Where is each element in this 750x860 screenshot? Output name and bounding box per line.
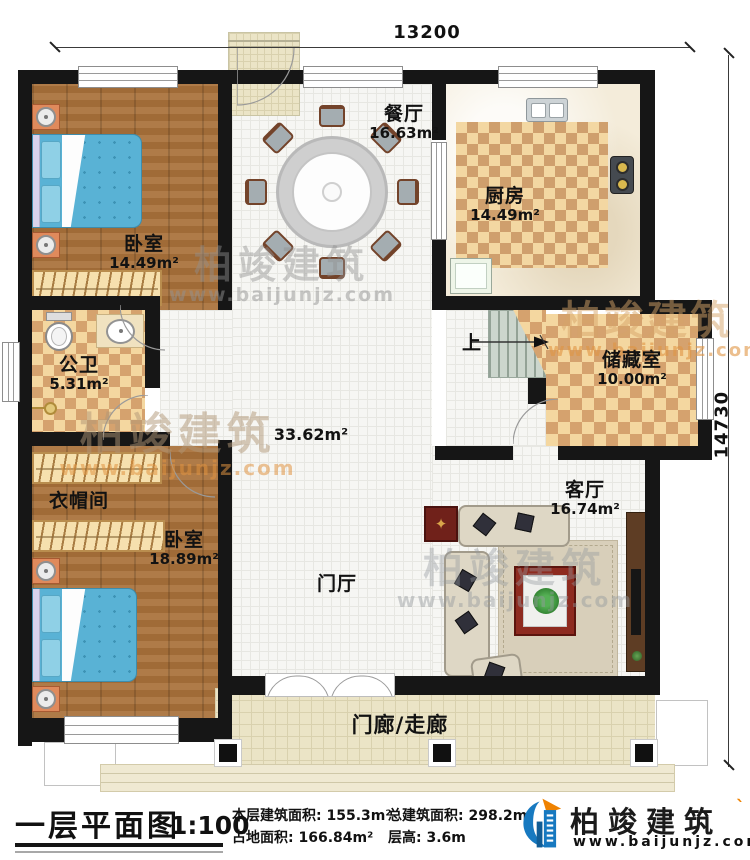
dimension-tick xyxy=(723,47,734,58)
title-bar: 一层平面图 1:100 本层建筑面积: 155.3m² 占地面积: 166.84… xyxy=(0,795,750,860)
window xyxy=(498,66,598,88)
chair-icon xyxy=(397,179,419,205)
door-arc-icon xyxy=(120,305,166,351)
window xyxy=(64,716,179,744)
logo-accent: ˋ xyxy=(736,797,745,818)
plan-title: 一层平面图 xyxy=(15,801,180,845)
porch-steps xyxy=(100,764,675,792)
stove-icon xyxy=(610,156,634,194)
pillow xyxy=(41,639,61,677)
dimension-label-right: 14730 xyxy=(712,399,733,459)
room-label-storage: 储藏室 10.00m² xyxy=(572,350,692,388)
wall-segment xyxy=(640,70,655,314)
door-arc-icon xyxy=(513,399,559,445)
dimension-label-top: 13200 xyxy=(382,22,472,43)
stat-label: 层高: xyxy=(388,830,422,846)
nightstand-icon xyxy=(32,104,60,130)
pillow xyxy=(41,141,61,179)
wall-segment xyxy=(435,446,513,460)
porch-column xyxy=(429,740,455,766)
drain-pipe xyxy=(32,407,46,409)
window xyxy=(78,66,178,88)
door-arc-icon xyxy=(103,395,149,441)
stats-column-2: 总建筑面积: 298.2m² 层高: 3.6m xyxy=(388,805,534,850)
dimension-line-top xyxy=(55,47,690,48)
porch-column xyxy=(215,740,241,766)
wall-segment xyxy=(395,676,645,695)
dimension-tick xyxy=(723,759,734,770)
bed-headboard xyxy=(33,135,40,227)
room-label-bedroom-top: 卧室 14.49m² xyxy=(94,234,194,272)
room-label-bedroom-bottom: 卧室 18.89m² xyxy=(134,530,234,568)
toilet-icon xyxy=(44,312,74,352)
pillow xyxy=(41,185,61,223)
stat-label: 占地面积: xyxy=(232,830,294,846)
wall-segment xyxy=(558,446,655,460)
pillow xyxy=(41,595,61,633)
title-underline-2 xyxy=(15,851,223,853)
stat-value: 166.84m² xyxy=(298,830,373,846)
room-label-dining: 餐厅 16.63m² xyxy=(354,104,454,142)
wall-segment xyxy=(432,296,655,310)
bed-icon xyxy=(32,134,142,228)
wall-segment xyxy=(18,70,32,746)
window xyxy=(303,66,403,88)
sliding-door xyxy=(431,142,447,240)
chair-icon xyxy=(319,257,345,279)
floor-plan: 上 ✦ xyxy=(0,0,750,860)
stairs-up-label: 上 xyxy=(462,328,481,355)
folding-door xyxy=(265,673,395,697)
side-table-icon: ✦ xyxy=(424,506,458,542)
chair-icon xyxy=(245,179,267,205)
nightstand-icon xyxy=(32,686,60,712)
bed-icon xyxy=(32,588,137,682)
door-arc-icon xyxy=(237,48,297,108)
logo-url: www.baijunjz.com xyxy=(573,834,750,850)
stat-label: 本层建筑面积: xyxy=(232,808,322,824)
window xyxy=(2,342,20,402)
room-label-bathroom: 公卫 5.31m² xyxy=(29,355,129,393)
door-arc-icon xyxy=(170,452,216,498)
stat-value: 3.6m xyxy=(426,830,465,846)
nightstand-icon xyxy=(32,232,60,258)
nightstand-icon xyxy=(32,558,60,584)
dining-table-icon xyxy=(276,136,388,248)
wall-segment xyxy=(232,676,265,695)
side-platform-right xyxy=(656,700,708,766)
fridge-icon xyxy=(450,258,492,294)
wall-segment xyxy=(218,70,232,310)
coffee-table-icon xyxy=(514,566,576,636)
stat-label: 总建筑面积: xyxy=(388,808,464,824)
room-label-cloakroom: 衣帽间 xyxy=(19,491,139,512)
bed-headboard xyxy=(33,589,40,681)
porch-column xyxy=(631,740,657,766)
stats-column-1: 本层建筑面积: 155.3m² 占地面积: 166.84m² xyxy=(232,805,392,850)
up-arrow-icon xyxy=(470,334,552,350)
cloakroom-rack-icon xyxy=(32,452,162,484)
title-underline xyxy=(15,843,223,847)
room-label-hall-area: 33.62m² xyxy=(261,426,361,444)
stat-value: 155.3m² xyxy=(326,808,391,824)
room-label-living: 客厅 16.74m² xyxy=(535,480,635,518)
wall-segment xyxy=(218,440,232,718)
kitchen-sink-icon xyxy=(526,98,568,122)
logo-icon xyxy=(518,797,564,849)
room-label-porch: 门廊/走廊 xyxy=(320,714,480,738)
wall-segment xyxy=(645,446,660,695)
room-label-foyer: 门厅 xyxy=(287,574,387,595)
chair-icon xyxy=(319,105,345,127)
sofa-cushion xyxy=(514,512,534,532)
logo: 柏竣建筑 ˋ www.baijunjz.com xyxy=(518,797,564,853)
corridor-floor xyxy=(160,310,232,446)
room-label-kitchen: 厨房 14.49m² xyxy=(455,186,555,224)
wall-segment xyxy=(655,446,712,460)
